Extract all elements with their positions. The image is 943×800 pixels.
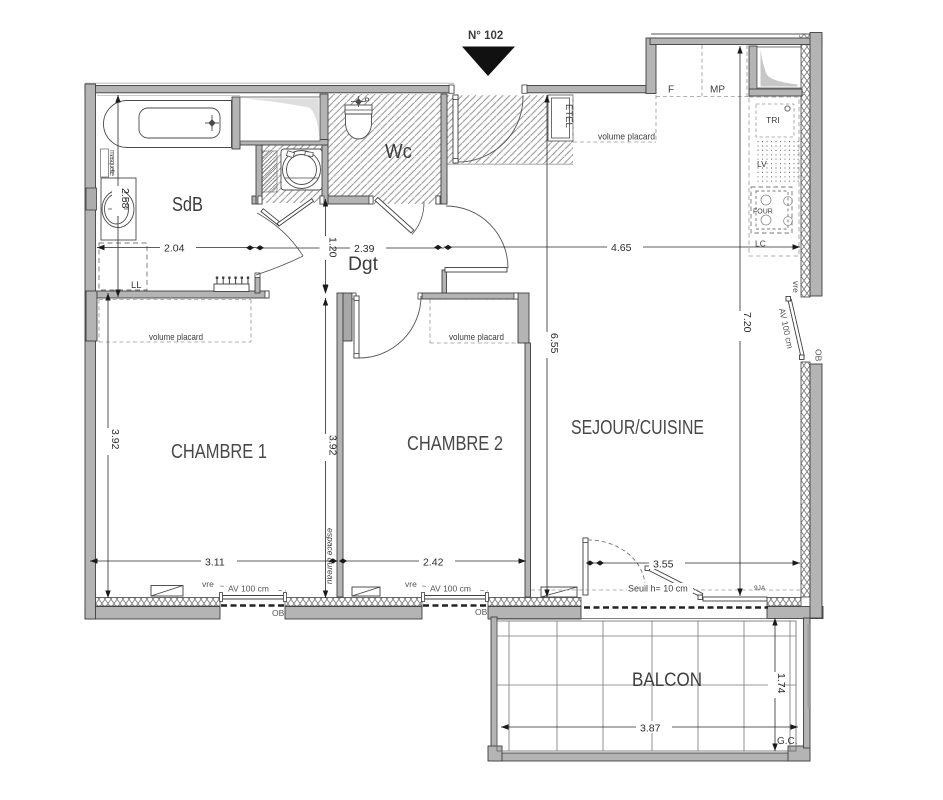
svg-text:OB: OB <box>814 349 824 362</box>
svg-text:SdB: SdB <box>172 194 203 216</box>
svg-text:AV 100 cm: AV 100 cm <box>228 584 269 594</box>
svg-text:volume placard: volume placard <box>149 332 203 343</box>
svg-text:1.74: 1.74 <box>775 673 787 694</box>
svg-text:ETEL: ETEL <box>563 104 574 128</box>
svg-text:MP: MP <box>710 85 725 96</box>
svg-text:FOUR: FOUR <box>753 209 773 216</box>
svg-text:3.55: 3.55 <box>653 559 674 571</box>
svg-text:Dgt: Dgt <box>348 253 379 275</box>
svg-text:4.65: 4.65 <box>611 242 632 254</box>
svg-text:vre: vre <box>202 579 214 589</box>
svg-text:F: F <box>668 85 674 96</box>
svg-text:CHAMBRE 1: CHAMBRE 1 <box>171 441 267 463</box>
svg-text:LV: LV <box>757 159 767 169</box>
svg-text:3.92: 3.92 <box>327 435 339 456</box>
svg-text:espace bureau: espace bureau <box>326 528 336 585</box>
svg-text:6.55: 6.55 <box>548 333 560 354</box>
svg-text:3.87: 3.87 <box>640 723 661 735</box>
svg-text:BALCON: BALCON <box>632 670 702 691</box>
svg-text:G.C.: G.C. <box>777 736 798 747</box>
svg-text:2.58: 2.58 <box>119 188 131 209</box>
svg-text:3.92: 3.92 <box>109 429 121 450</box>
svg-text:7.20: 7.20 <box>741 312 753 333</box>
svg-text:3.11: 3.11 <box>205 557 225 569</box>
svg-text:volume placard: volume placard <box>449 332 504 343</box>
svg-text:TRI: TRI <box>766 115 780 125</box>
svg-text:masquette: masquette <box>108 150 115 176</box>
svg-text:OB: OB <box>272 608 285 618</box>
svg-text:SEJOUR/CUISINE: SEJOUR/CUISINE <box>571 417 704 439</box>
svg-text:vre: vre <box>791 281 801 293</box>
svg-text:1.20: 1.20 <box>327 237 339 258</box>
svg-text:vre: vre <box>405 579 417 589</box>
svg-text:AV 100 cm: AV 100 cm <box>430 584 471 594</box>
svg-text:Wc: Wc <box>385 140 412 163</box>
svg-text:CHAMBRE 2: CHAMBRE 2 <box>407 433 503 455</box>
svg-text:2.04: 2.04 <box>164 243 185 255</box>
svg-text:LL: LL <box>131 280 142 291</box>
svg-text:Seuil h= 10 cm: Seuil h= 10 cm <box>628 584 688 594</box>
svg-text:2.42: 2.42 <box>423 557 444 569</box>
svg-text:9JA: 9JA <box>754 585 766 592</box>
svg-text:volume placard: volume placard <box>598 132 655 143</box>
svg-text:OB: OB <box>475 607 488 617</box>
svg-text:N° 102: N° 102 <box>468 30 503 42</box>
